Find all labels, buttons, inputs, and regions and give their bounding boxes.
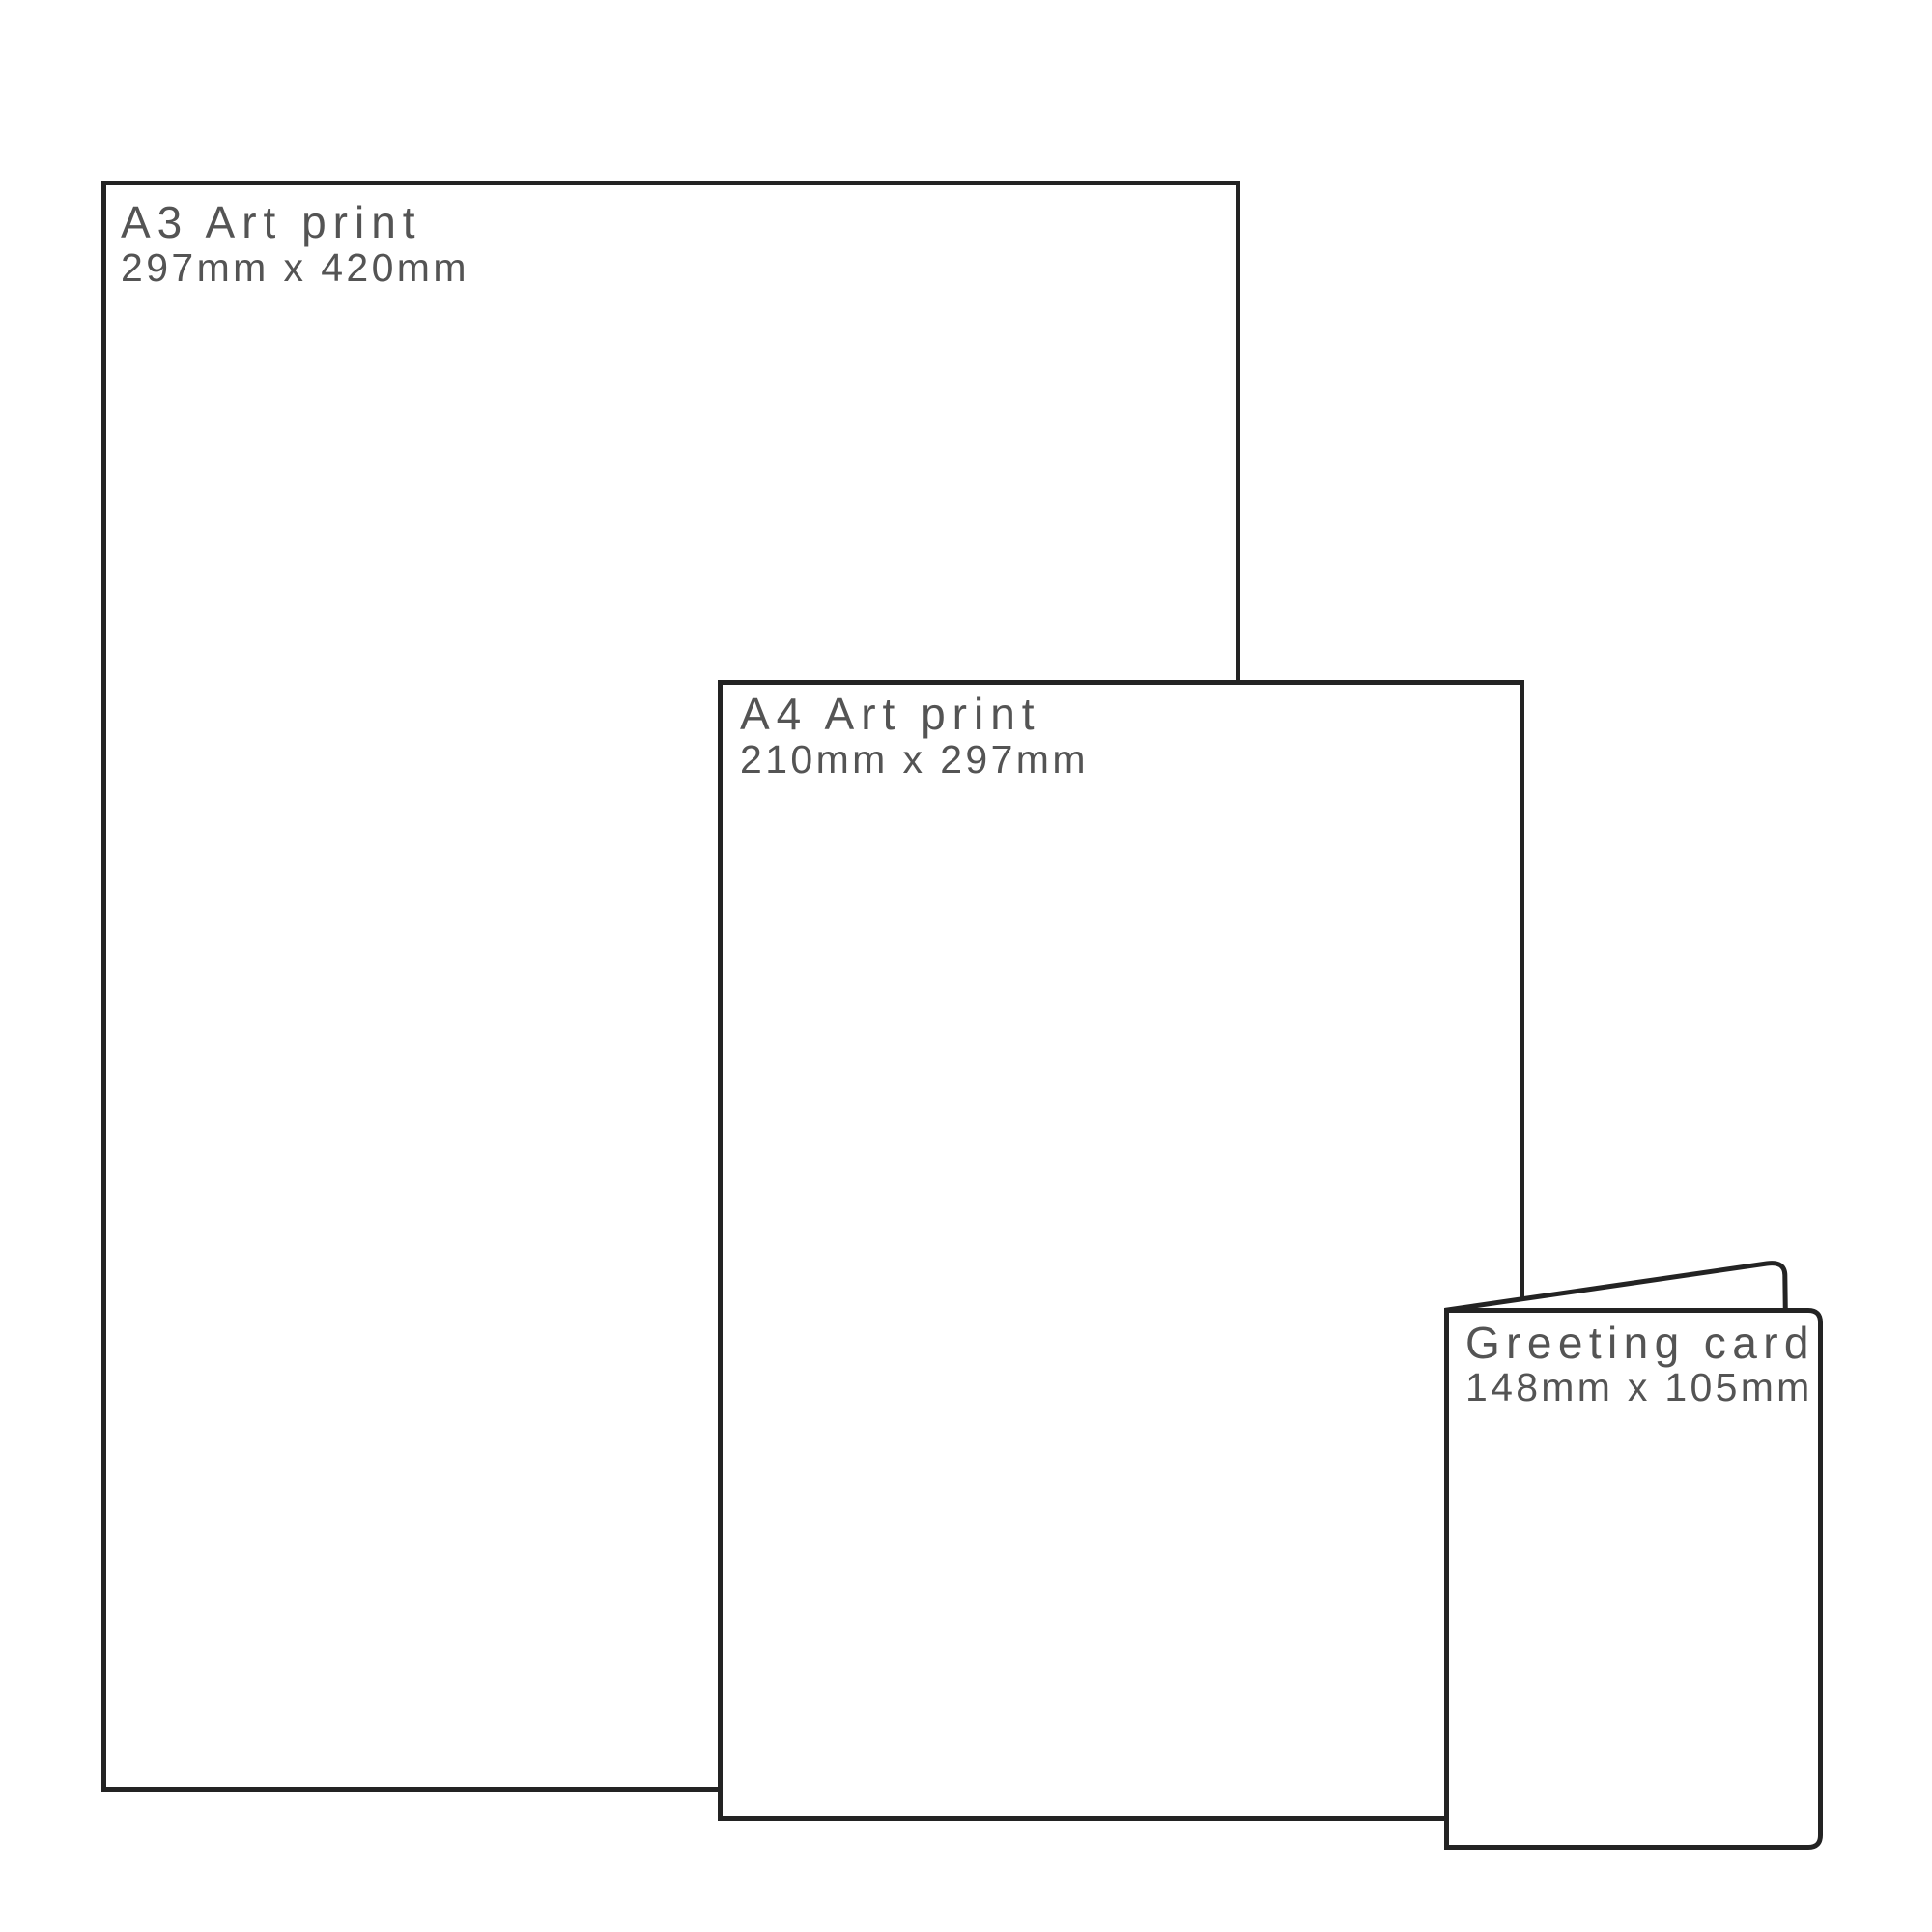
svg-text:148mm x 105mm: 148mm x 105mm xyxy=(1465,1365,1813,1409)
svg-text:Greeting card: Greeting card xyxy=(1465,1318,1815,1368)
svg-text:A4 Art print: A4 Art print xyxy=(740,689,1041,739)
svg-text:210mm x 297mm: 210mm x 297mm xyxy=(740,737,1089,781)
svg-text:A3 Art print: A3 Art print xyxy=(121,197,422,247)
svg-text:297mm x 420mm: 297mm x 420mm xyxy=(121,245,469,290)
